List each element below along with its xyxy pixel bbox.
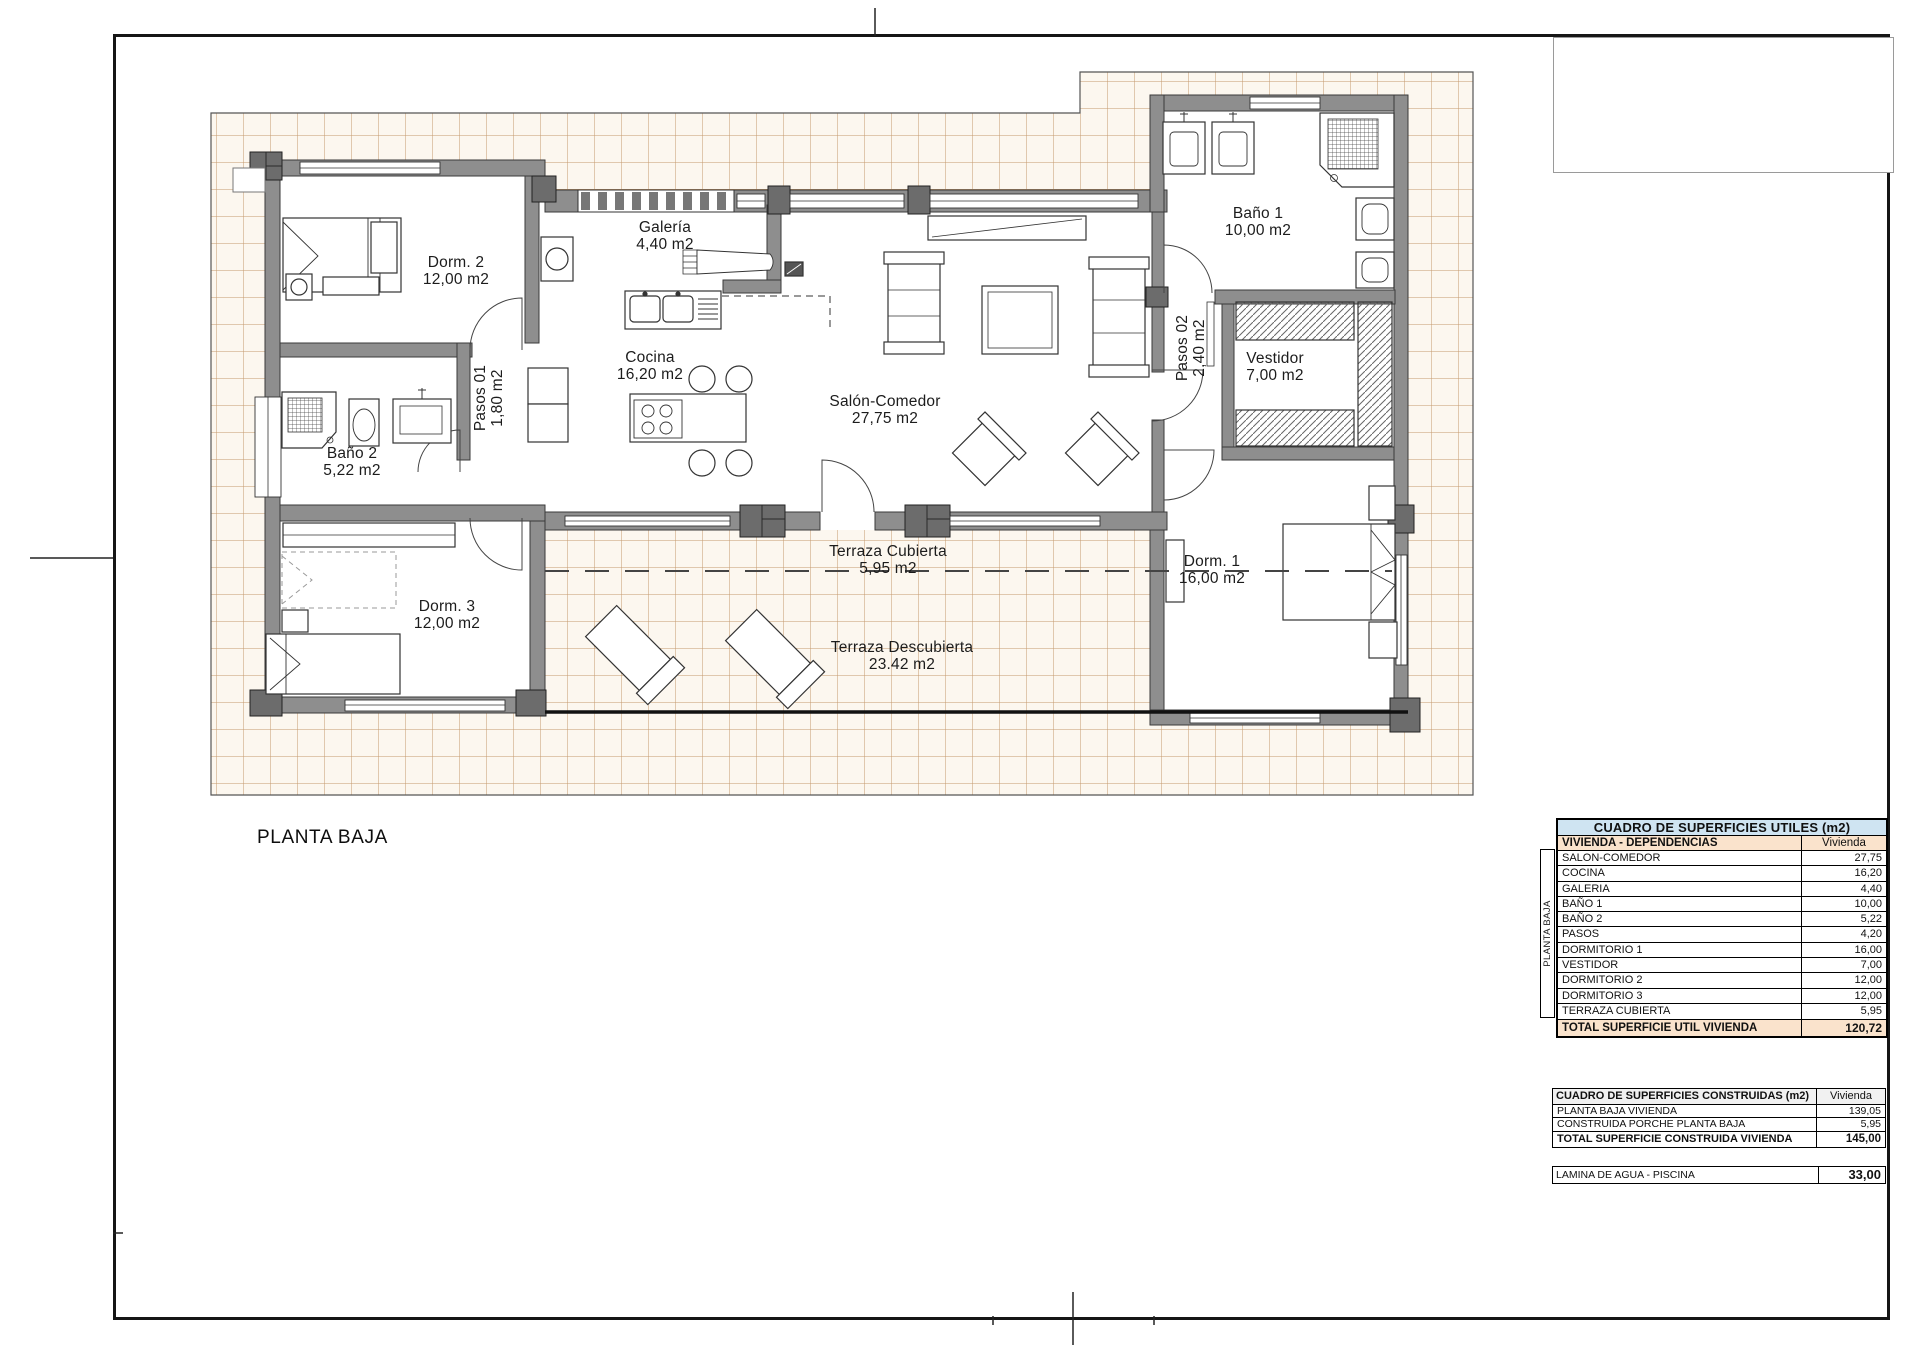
- table-side-label: PLANTA BAJA: [1540, 849, 1555, 1018]
- row-label: VESTIDOR: [1558, 958, 1802, 972]
- table-row: GALERIA4,40: [1558, 882, 1886, 897]
- table-row: BAÑO 110,00: [1558, 897, 1886, 912]
- louver-window: [578, 190, 734, 212]
- table-row: BAÑO 25,22: [1558, 912, 1886, 927]
- row-label: BAÑO 2: [1558, 912, 1802, 926]
- room-label-dorm2: Dorm. 212,00 m2: [423, 254, 489, 288]
- row-label: TERRAZA CUBIERTA: [1558, 1004, 1802, 1019]
- room-label-salon: Salón-Comedor27,75 m2: [829, 393, 940, 427]
- row-value: 10,00: [1802, 897, 1886, 911]
- drawing-sheet: Dorm. 212,00 m2 Galería4,40 m2 Baño 110,…: [0, 0, 1920, 1357]
- table-row: SALON-COMEDOR27,75: [1558, 851, 1886, 866]
- row-label: DORMITORIO 2: [1558, 973, 1802, 987]
- row-value: 139,05: [1817, 1105, 1885, 1117]
- row-value: 27,75: [1802, 851, 1886, 865]
- room-label-cocina: Cocina16,20 m2: [617, 349, 683, 383]
- entry-slab: [233, 168, 265, 192]
- row-value: 7,00: [1802, 958, 1886, 972]
- row-label: CONSTRUIDA PORCHE PLANTA BAJA: [1553, 1118, 1817, 1131]
- row-label: DORMITORIO 1: [1558, 943, 1802, 957]
- room-label-bano2: Baño 25,22 m2: [323, 445, 380, 479]
- table-header-right: Vivienda: [1817, 1089, 1885, 1104]
- table-row: DORMITORIO 212,00: [1558, 973, 1886, 988]
- room-label-pasos02: Pasos 022,40 m2: [1174, 315, 1208, 381]
- room-label-terraza-cubierta: Terraza Cubierta5,95 m2: [829, 543, 947, 577]
- table-row: PASOS4,20: [1558, 927, 1886, 942]
- total-label: TOTAL SUPERFICIE UTIL VIVIENDA: [1558, 1020, 1802, 1036]
- table-row: TERRAZA CUBIERTA5,95: [1558, 1004, 1886, 1019]
- total-label: TOTAL SUPERFICIE CONSTRUIDA VIVIENDA: [1553, 1132, 1817, 1147]
- row-value: 4,40: [1802, 882, 1886, 896]
- table-total-row: TOTAL SUPERFICIE UTIL VIVIENDA 120,72: [1558, 1019, 1886, 1036]
- table-row: DORMITORIO 116,00: [1558, 943, 1886, 958]
- row-value: 5,95: [1817, 1118, 1885, 1131]
- floor-plan: [0, 0, 1920, 1357]
- row-value: 12,00: [1802, 989, 1886, 1003]
- total-value: 120,72: [1802, 1020, 1886, 1036]
- table-row: VESTIDOR7,00: [1558, 958, 1886, 973]
- room-label-galeria: Galería4,40 m2: [636, 219, 693, 253]
- pool-value: 33,00: [1818, 1166, 1886, 1184]
- table-total-row: TOTAL SUPERFICIE CONSTRUIDA VIVIENDA 145…: [1553, 1131, 1885, 1147]
- table-row: DORMITORIO 312,00: [1558, 989, 1886, 1004]
- room-label-bano1: Baño 110,00 m2: [1225, 205, 1291, 239]
- table-row: PLANTA BAJA VIVIENDA139,05: [1553, 1105, 1885, 1118]
- room-label-dorm3: Dorm. 312,00 m2: [414, 598, 480, 632]
- table-header-row: VIVIENDA - DEPENDENCIAS Vivienda: [1558, 836, 1886, 851]
- row-label: DORMITORIO 3: [1558, 989, 1802, 1003]
- row-value: 5,22: [1802, 912, 1886, 926]
- row-label: GALERIA: [1558, 882, 1802, 896]
- construidas-rows: PLANTA BAJA VIVIENDA139,05CONSTRUIDA POR…: [1553, 1105, 1885, 1131]
- table-header-left: VIVIENDA - DEPENDENCIAS: [1558, 836, 1802, 850]
- row-label: PLANTA BAJA VIVIENDA: [1553, 1105, 1817, 1117]
- row-value: 4,20: [1802, 927, 1886, 941]
- row-value: 16,20: [1802, 866, 1886, 880]
- table-title: CUADRO DE SUPERFICIES CONSTRUIDAS (m2): [1553, 1089, 1817, 1104]
- table-header-row: CUADRO DE SUPERFICIES CONSTRUIDAS (m2) V…: [1553, 1089, 1885, 1105]
- row-label: COCINA: [1558, 866, 1802, 880]
- total-value: 145,00: [1817, 1132, 1885, 1147]
- room-label-vestidor: Vestidor7,00 m2: [1246, 350, 1304, 384]
- table-header-right: Vivienda: [1802, 836, 1886, 850]
- built-surfaces-table: CUADRO DE SUPERFICIES CONSTRUIDAS (m2) V…: [1552, 1088, 1886, 1148]
- row-value: 16,00: [1802, 943, 1886, 957]
- room-label-terraza-descubierta: Terraza Descubierta23.42 m2: [831, 639, 974, 673]
- room-label-dorm1: Dorm. 116,00 m2: [1179, 553, 1245, 587]
- pool-surface-row: LAMINA DE AGUA - PISCINA 33,00: [1552, 1166, 1886, 1184]
- row-value: 12,00: [1802, 973, 1886, 987]
- plan-title: PLANTA BAJA: [257, 827, 388, 849]
- row-label: SALON-COMEDOR: [1558, 851, 1802, 865]
- table-row: CONSTRUIDA PORCHE PLANTA BAJA5,95: [1553, 1118, 1885, 1131]
- pool-label: LAMINA DE AGUA - PISCINA: [1552, 1166, 1818, 1184]
- table-row: COCINA16,20: [1558, 866, 1886, 881]
- room-label-pasos01: Pasos 011,80 m2: [472, 365, 506, 431]
- utiles-rows: SALON-COMEDOR27,75COCINA16,20GALERIA4,40…: [1558, 851, 1886, 1019]
- row-value: 5,95: [1802, 1004, 1886, 1019]
- row-label: PASOS: [1558, 927, 1802, 941]
- row-label: BAÑO 1: [1558, 897, 1802, 911]
- table-title: CUADRO DE SUPERFICIES UTILES (m2): [1558, 820, 1886, 836]
